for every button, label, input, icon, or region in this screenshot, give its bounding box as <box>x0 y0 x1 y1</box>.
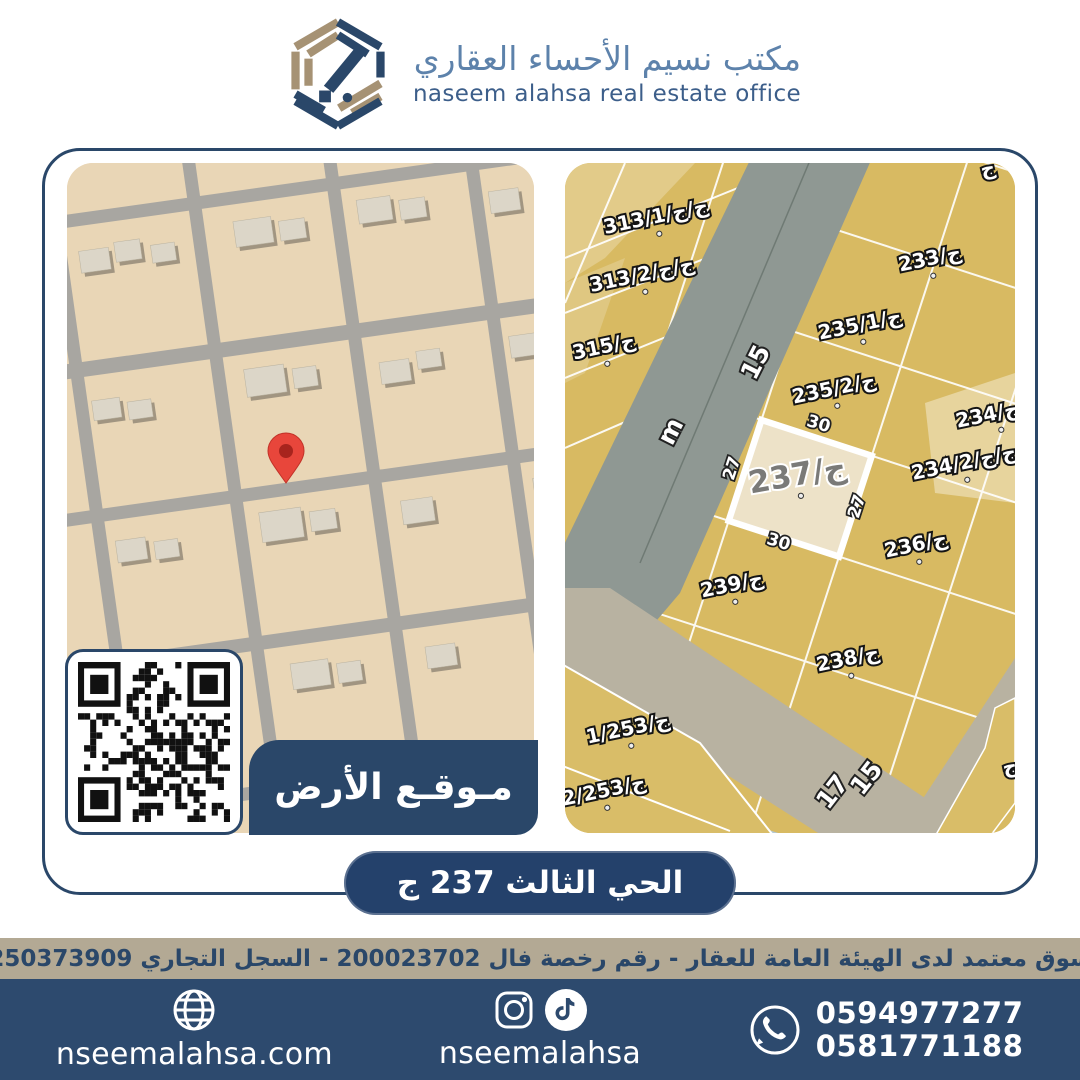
instagram-icon <box>492 988 536 1032</box>
brand-logo-icon <box>279 15 397 133</box>
website-block: nseemalahsa.com <box>0 987 389 1072</box>
footer-bar: nseemalahsa.com nseemalahsa <box>0 979 1080 1080</box>
phone-numbers: 0594977277 0581771188 <box>816 997 1024 1062</box>
phone-block: 0594977277 0581771188 <box>691 997 1080 1062</box>
qr-code-pattern <box>78 662 230 822</box>
header: مكتب نسيم الأحساء العقاري naseem alahsa … <box>0 0 1080 148</box>
brand-title-arabic: مكتب نسيم الأحساء العقاري <box>413 38 801 79</box>
tiktok-icon <box>544 988 588 1032</box>
qr-code <box>65 649 243 835</box>
website-link[interactable]: nseemalahsa.com <box>56 1037 333 1072</box>
phone-number-1[interactable]: 0594977277 <box>816 997 1024 1029</box>
social-handle[interactable]: nseemalahsa <box>439 1036 641 1071</box>
accreditation-strip: مسوق معتمد لدى الهيئة العامة للعقار - رق… <box>0 938 1080 979</box>
phone-number-2[interactable]: 0581771188 <box>816 1030 1024 1062</box>
parcel-map-image: ج/ج/313/1ج/ج/313/2ج/315ج/233ج/235/1ج/235… <box>565 163 1015 833</box>
social-block: nseemalahsa <box>389 988 691 1071</box>
brand-text: مكتب نسيم الأحساء العقاري naseem alahsa … <box>413 38 801 109</box>
brand-title-english: naseem alahsa real estate office <box>413 80 801 110</box>
maps-card: ج/ج/313/1ج/ج/313/2ج/315ج/233ج/235/1ج/235… <box>42 148 1038 895</box>
district-banner: الحي الثالث 237 ج <box>344 851 736 915</box>
whatsapp-icon <box>748 1003 802 1057</box>
accreditation-text: مسوق معتمد لدى الهيئة العامة للعقار - رق… <box>0 946 1080 972</box>
location-label: مـوقـع الأرض <box>249 740 538 835</box>
globe-icon <box>171 987 217 1033</box>
social-icons <box>492 988 588 1032</box>
parcel-map-panel: ج/ج/313/1ج/ج/313/2ج/315ج/233ج/235/1ج/235… <box>565 163 1015 833</box>
flyer: مكتب نسيم الأحساء العقاري naseem alahsa … <box>0 0 1080 1080</box>
